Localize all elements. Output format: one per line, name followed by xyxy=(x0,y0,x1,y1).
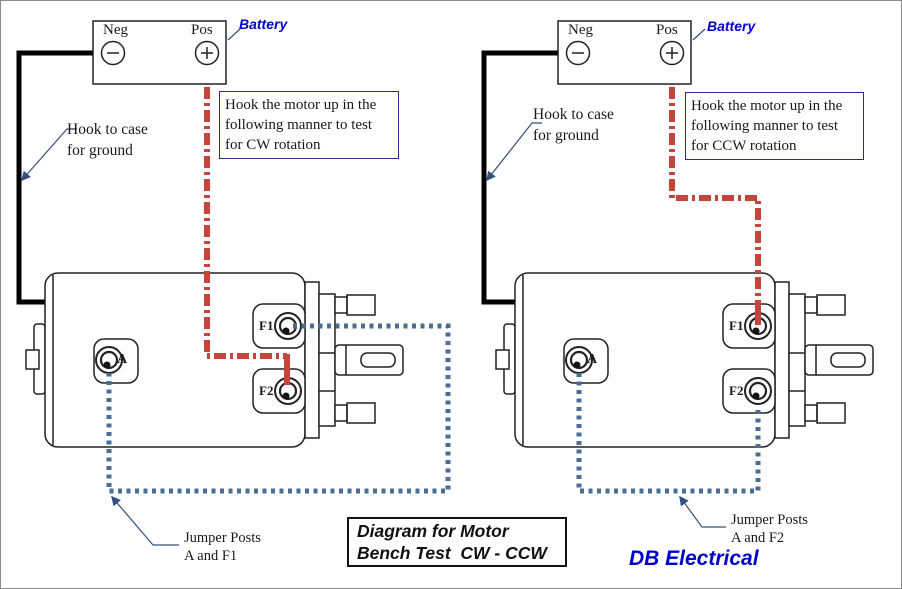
right-motor xyxy=(496,273,873,447)
left-instruction-line2: following manner to test xyxy=(225,115,393,135)
left-instruction-line3: for CW rotation xyxy=(225,135,393,155)
diagram-title-box: Diagram for Motor Bench Test CW - CCW xyxy=(347,517,567,567)
left-terminal-a-mark xyxy=(104,362,111,369)
right-neg-label: Neg xyxy=(568,22,593,39)
right-jumper-note-line2: A and F2 xyxy=(731,529,808,547)
left-motor-shaft-keyway xyxy=(361,353,395,367)
diagram-canvas: Neg Pos Battery Neg Pos Battery Hook to … xyxy=(0,0,902,589)
left-jumper-note-line1: Jumper Posts xyxy=(184,529,261,547)
left-battery-label: Battery xyxy=(239,16,287,32)
right-motor-side-nut xyxy=(496,350,509,369)
right-motor-top-stud-thread xyxy=(817,295,845,315)
right-battery-leader-line xyxy=(693,29,705,40)
diagram-title-line2: Bench Test CW - CCW xyxy=(357,542,557,564)
right-ground-note-line2: for ground xyxy=(533,125,614,146)
right-instruction-line2: following manner to test xyxy=(691,116,858,136)
right-motor-endcap xyxy=(775,282,789,438)
right-ground-wire xyxy=(484,53,567,302)
left-ground-note-line2: for ground xyxy=(67,140,148,161)
right-terminal-a-mark xyxy=(574,362,581,369)
brand-label: DB Electrical xyxy=(629,547,759,571)
left-neg-label: Neg xyxy=(103,22,128,39)
right-jumper-note: Jumper Posts A and F2 xyxy=(731,511,808,547)
left-motor-body xyxy=(45,273,305,447)
left-ground-note: Hook to case for ground xyxy=(67,119,148,161)
right-motor-bottom-stud-thread xyxy=(817,403,845,423)
left-motor-side-nut xyxy=(26,350,39,369)
left-ground-wire xyxy=(19,53,102,302)
right-jumper-note-line1: Jumper Posts xyxy=(731,511,808,529)
left-terminal-f2-label: F2 xyxy=(259,383,273,399)
left-terminal-f2-mark xyxy=(283,393,290,400)
left-pos-label: Pos xyxy=(191,22,213,39)
right-ground-note-line1: Hook to case xyxy=(533,104,614,125)
right-terminal-f1-label: F1 xyxy=(729,318,743,334)
left-terminal-f1-mark xyxy=(283,328,290,335)
left-motor-top-stud-base xyxy=(335,297,347,313)
right-jumper-leader-line xyxy=(680,497,726,527)
right-instruction-line1: Hook the motor up in the xyxy=(691,96,858,116)
left-motor-endcap xyxy=(305,282,319,438)
left-terminal-a-label: A xyxy=(117,352,127,368)
right-terminal-f1-mark xyxy=(753,328,760,335)
left-jumper-note: Jumper Posts A and F1 xyxy=(184,529,261,565)
right-motor-shaft-keyway xyxy=(831,353,865,367)
right-motor-bottom-stud-base xyxy=(805,405,817,421)
left-ground-note-line1: Hook to case xyxy=(67,119,148,140)
left-motor-bottom-stud-thread xyxy=(347,403,375,423)
left-motor-flange xyxy=(319,294,335,426)
right-pos-label: Pos xyxy=(656,22,678,39)
left-motor-bottom-stud-base xyxy=(335,405,347,421)
diagram-title-line1: Diagram for Motor xyxy=(357,520,557,542)
right-terminal-a-label: A xyxy=(587,352,597,368)
right-motor-top-stud-base xyxy=(805,297,817,313)
left-motor-top-stud-thread xyxy=(347,295,375,315)
right-instruction-box: Hook the motor up in the following manne… xyxy=(685,92,864,160)
right-ground-note: Hook to case for ground xyxy=(533,104,614,146)
left-instruction-line1: Hook the motor up in the xyxy=(225,95,393,115)
right-battery-label: Battery xyxy=(707,18,755,34)
left-jumper-leader-line xyxy=(112,497,179,545)
right-terminal-f2-label: F2 xyxy=(729,383,743,399)
right-motor-flange xyxy=(789,294,805,426)
right-instruction-line3: for CCW rotation xyxy=(691,136,858,156)
left-terminal-f1-label: F1 xyxy=(259,318,273,334)
right-terminal-f2-mark xyxy=(753,393,760,400)
left-motor xyxy=(26,273,403,447)
left-jumper-note-line2: A and F1 xyxy=(184,547,261,565)
left-instruction-box: Hook the motor up in the following manne… xyxy=(219,91,399,159)
right-motor-body xyxy=(515,273,775,447)
wiring-diagram-svg xyxy=(1,1,902,589)
